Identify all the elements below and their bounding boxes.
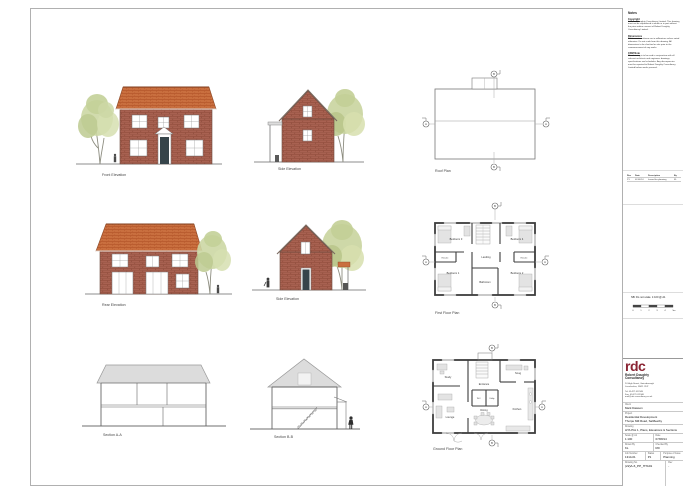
section-marker-icon: A	[539, 401, 546, 410]
notes-title: Notes	[628, 11, 680, 15]
section-bb-panel: Section B-B	[244, 346, 366, 442]
project-row: Project Residential Development Thorpe M…	[623, 412, 683, 425]
rdc-logo: rdc	[625, 360, 681, 373]
door-swings	[446, 433, 488, 442]
svg-text:Bedroom 3: Bedroom 3	[450, 237, 463, 241]
svg-text:A: A	[425, 122, 427, 126]
drawing-label: First Floor Plan	[435, 311, 459, 315]
walls	[101, 383, 206, 426]
notes-block: Notes Copyright © Robert Doughty Consult…	[628, 11, 680, 70]
roof-outline	[435, 78, 535, 159]
svg-text:A: A	[545, 122, 547, 126]
svg-text:1: 1	[640, 310, 642, 312]
title-strip: Notes Copyright © Robert Doughty Consult…	[622, 8, 683, 486]
drawing-label: Roof Plan	[435, 169, 451, 173]
stairs	[476, 362, 488, 378]
drawing-label: Side Elevation	[278, 167, 301, 171]
section-marker-icon: B	[491, 164, 500, 171]
first-floor-plan-panel: Bedroom 3 Bedroom 4 Bedroom 1 Bedroom 2 …	[420, 200, 565, 318]
house-gable	[279, 90, 337, 162]
person-figure	[114, 154, 116, 162]
svg-text:4: 4	[664, 310, 666, 312]
section-marker-icon: B	[489, 440, 498, 447]
tree	[78, 94, 119, 164]
stairs	[298, 407, 317, 429]
drawing-title-row: Drawing HTA Plot 1, Plans, Elevations & …	[623, 425, 683, 434]
section-marker-icon: A	[542, 256, 549, 265]
svg-text:3: 3	[656, 310, 658, 312]
svg-text:A: A	[425, 260, 427, 264]
porch-outline	[478, 353, 492, 360]
rear-elevation-panel: Rear Elevation	[80, 208, 240, 312]
house-front	[116, 87, 216, 164]
svg-text:B: B	[491, 346, 493, 350]
section-marker-icon: B	[491, 70, 500, 77]
drawing-sheet: Front Elevation	[0, 0, 700, 495]
stairs	[476, 225, 490, 244]
revision-table: Rev Date Description By P1 02.08.14 Issu…	[627, 174, 681, 182]
roof-plan-panel: A A B B Roof Plan	[420, 68, 565, 180]
side-elevation-2-panel: Side Elevation	[244, 206, 374, 306]
section-marker-icon: B	[492, 302, 501, 309]
svg-text:Lounge: Lounge	[446, 415, 455, 419]
front-elevation-panel: Front Elevation	[70, 60, 230, 188]
scale-note: NB: Do not scale. 1:100 @ A1	[631, 296, 681, 299]
svg-text:A: A	[544, 260, 546, 264]
svg-text:Utility: Utility	[490, 397, 495, 400]
section-marker-icon: A	[543, 118, 550, 127]
drawing-label: Ground Floor Plan	[433, 447, 462, 451]
side-elevation-1-panel: Side Elevation	[248, 62, 370, 174]
client-row: Client Mark Dawson	[623, 403, 683, 412]
job-status-row: Job Number 1314-01 Status P1 Purpose of …	[623, 452, 683, 461]
svg-text:Kitchen: Kitchen	[513, 407, 522, 411]
svg-text:B: B	[494, 303, 496, 307]
tree	[195, 231, 231, 294]
person-figure	[348, 416, 353, 429]
drawing-no-row: Drawing No. (22)A-6_PP_HTA01 Rev -	[623, 461, 683, 486]
section-marker-icon: A	[422, 401, 429, 410]
svg-text:B: B	[491, 441, 493, 445]
drawing-label: Side Elevation	[276, 297, 299, 301]
walls	[272, 387, 337, 429]
person-figure	[264, 278, 269, 288]
svg-text:Entrance: Entrance	[479, 382, 490, 386]
svg-text:B: B	[493, 165, 495, 169]
ground-floor-plan-panel: Study Entrance Snug Lounge Dining Kitche…	[420, 342, 565, 454]
canopy	[268, 122, 282, 162]
floor	[272, 407, 337, 409]
title-block: rdc Robert Doughty Consultancy 24 High S…	[623, 358, 683, 486]
svg-text:A: A	[425, 405, 427, 409]
floors-partitions	[101, 383, 206, 426]
drawing-label: Rear Elevation	[102, 303, 126, 307]
stair-bulkhead	[298, 373, 311, 385]
svg-text:Snug: Snug	[515, 371, 522, 375]
windows	[112, 254, 189, 294]
svg-text:2: 2	[648, 310, 650, 312]
section-marker-icon: B	[492, 202, 501, 209]
drawing-label: Section B-B	[274, 435, 294, 439]
svg-text:W.C.: W.C.	[477, 398, 482, 400]
company-address: 24 High Street, Gainsborough Lincolnshir…	[625, 383, 681, 389]
roof-section	[97, 365, 210, 383]
svg-text:5m: 5m	[672, 310, 675, 312]
company-contact: Tel: 01427 612345 Fax: 01427 612346 mail…	[625, 391, 681, 400]
svg-text:Ensuite: Ensuite	[442, 257, 450, 260]
svg-text:B: B	[494, 204, 496, 208]
section-marker-icon: A	[422, 256, 429, 265]
company-name: Robert Doughty Consultancy	[625, 374, 681, 381]
svg-text:Landing: Landing	[481, 255, 491, 259]
svg-text:Bedroom 1: Bedroom 1	[447, 271, 460, 275]
drawing-number: (22)A-6_PP_HTA01	[625, 464, 663, 468]
client-value: Mark Dawson	[625, 406, 681, 410]
svg-text:0: 0	[632, 310, 634, 312]
svg-text:B: B	[493, 72, 495, 76]
section-marker-icon: B	[489, 344, 498, 351]
project-value: Residential Development Thorpe Mill Road…	[625, 415, 681, 423]
section-marker-icon: A	[422, 118, 429, 127]
drawn-checked-row: Drawn By KL Checked By RD	[623, 443, 683, 452]
scale-bar: 0 1 2 3 4 5m	[631, 303, 679, 313]
house-rear	[96, 224, 202, 294]
svg-text:Bedroom 4: Bedroom 4	[511, 237, 524, 241]
section-aa-panel: Section A-A	[78, 350, 230, 442]
revision-row: P1 02.08.14 Issued for planning KL	[627, 178, 681, 182]
drawing-title-value: HTA Plot 1, Plans, Elevations & Sections	[625, 428, 681, 432]
svg-text:Dining: Dining	[480, 408, 488, 412]
svg-text:Study: Study	[445, 375, 452, 379]
drawing-label: Front Elevation	[102, 173, 126, 177]
svg-text:Bathroom: Bathroom	[479, 280, 490, 284]
svg-text:Bedroom 2: Bedroom 2	[511, 271, 524, 275]
svg-text:Ensuite: Ensuite	[521, 257, 529, 260]
person-figure	[217, 285, 219, 293]
porch	[334, 397, 347, 429]
svg-text:A: A	[541, 405, 543, 409]
scale-date-row: Scale @ A1 1:100 Date 07/08/14	[623, 434, 683, 443]
drawing-label: Section A-A	[103, 433, 122, 437]
